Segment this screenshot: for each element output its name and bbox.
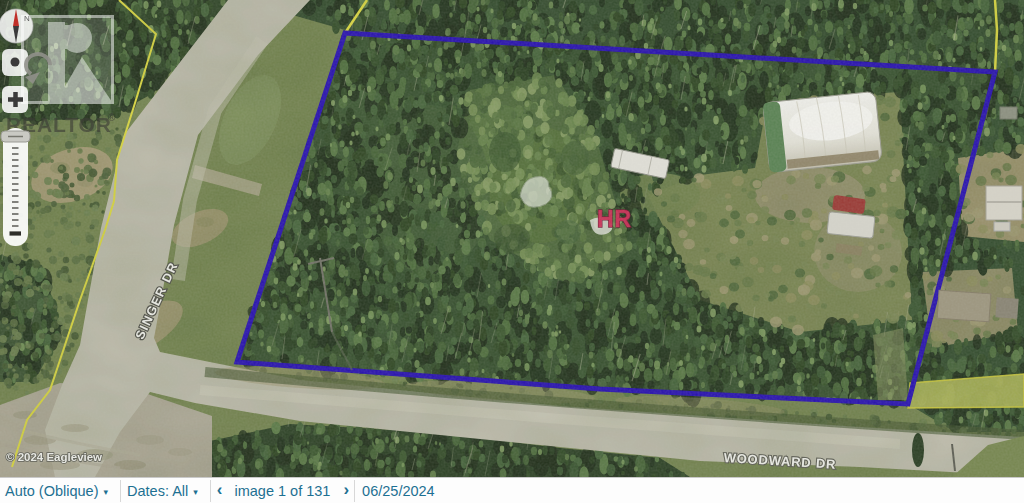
svg-text:N: N xyxy=(24,14,30,23)
svg-text:®: ® xyxy=(108,112,116,123)
